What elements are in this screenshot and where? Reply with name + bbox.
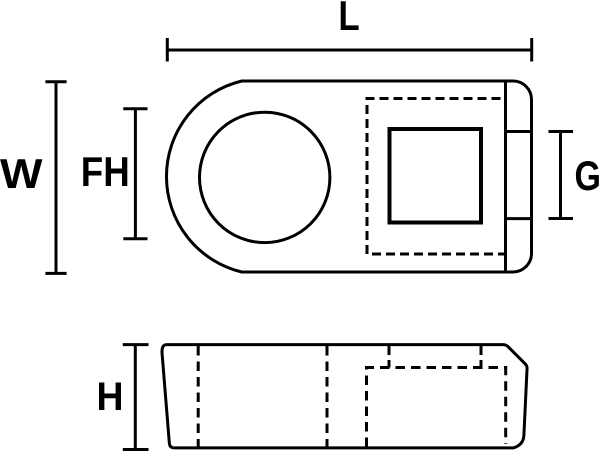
svg-text:H: H: [97, 375, 124, 419]
svg-text:G: G: [575, 152, 600, 199]
svg-text:W: W: [0, 150, 43, 197]
svg-text:FH: FH: [81, 148, 130, 195]
svg-text:L: L: [338, 0, 359, 39]
